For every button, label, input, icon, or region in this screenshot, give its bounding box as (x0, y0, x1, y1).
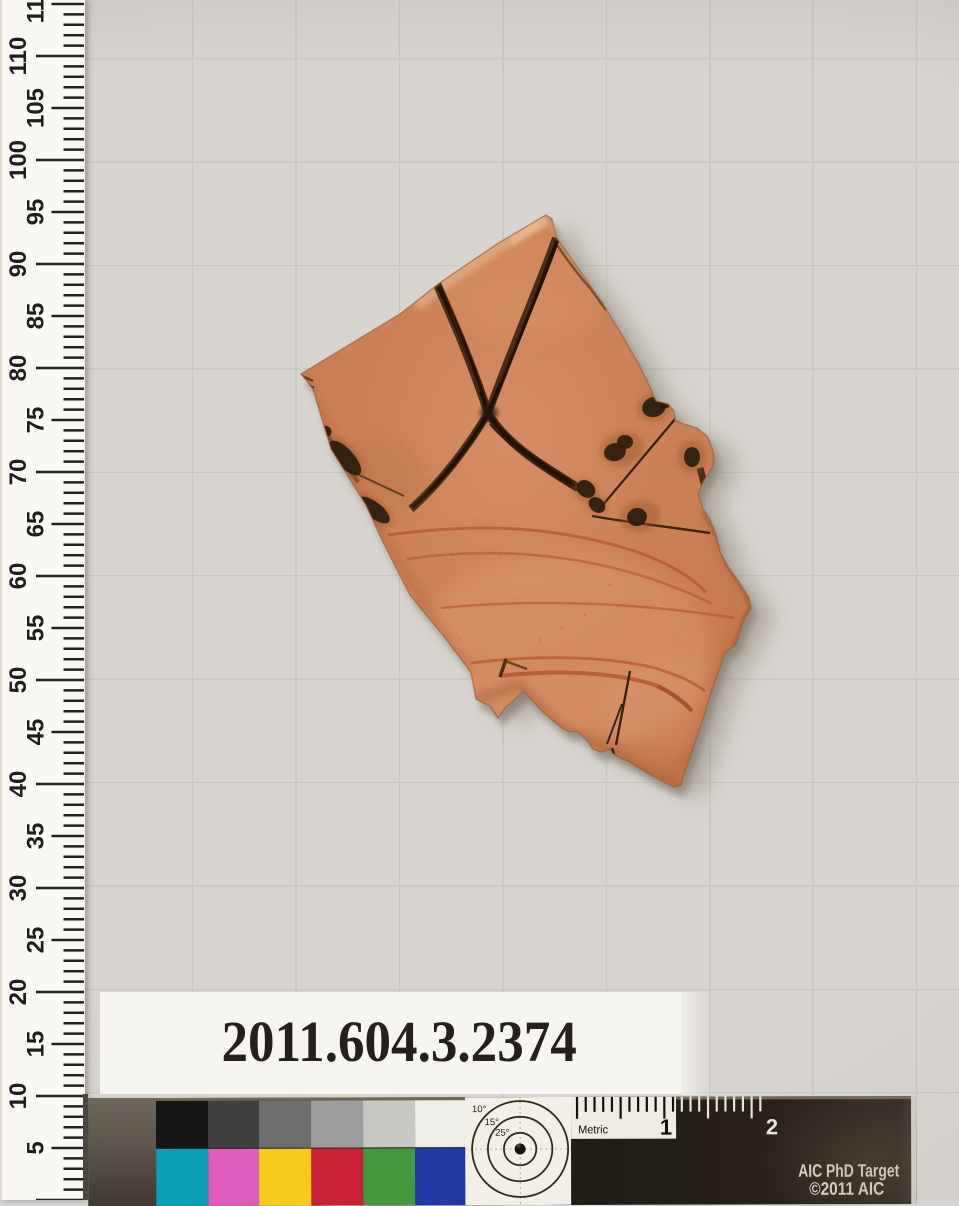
svg-text:105: 105 (23, 88, 50, 128)
svg-text:10: 10 (5, 1083, 32, 1110)
svg-text:20: 20 (5, 979, 32, 1006)
svg-text:45: 45 (23, 719, 50, 746)
svg-text:70: 70 (5, 459, 32, 486)
svg-text:25: 25 (23, 927, 50, 954)
svg-text:65: 65 (23, 511, 50, 538)
svg-text:50: 50 (5, 667, 32, 694)
svg-text:60: 60 (5, 563, 32, 590)
svg-text:115: 115 (23, 0, 50, 23)
svg-text:40: 40 (5, 771, 32, 798)
svg-text:30: 30 (5, 875, 32, 902)
svg-text:2: 2 (766, 1114, 778, 1139)
svg-text:5: 5 (23, 1141, 50, 1154)
svg-text:55: 55 (23, 615, 50, 642)
svg-text:75: 75 (23, 407, 50, 434)
svg-text:AIC PhD Target: AIC PhD Target (798, 1161, 899, 1181)
svg-text:1: 1 (660, 1115, 672, 1140)
svg-text:80: 80 (5, 355, 32, 382)
svg-text:95: 95 (23, 199, 50, 226)
svg-text:15: 15 (23, 1031, 50, 1058)
svg-text:Metric: Metric (578, 1124, 608, 1136)
svg-text:©2011 AIC: ©2011 AIC (809, 1179, 884, 1199)
svg-text:100: 100 (5, 140, 32, 180)
svg-text:85: 85 (23, 303, 50, 330)
svg-text:35: 35 (23, 823, 50, 850)
svg-text:110: 110 (5, 37, 32, 76)
svg-text:90: 90 (5, 251, 32, 278)
